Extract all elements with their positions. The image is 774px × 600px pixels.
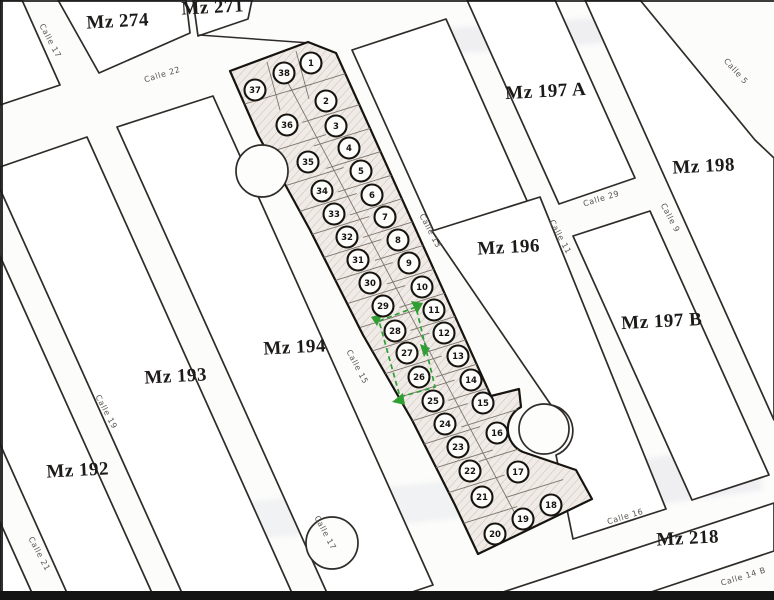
block-label-mz-193: Mz 193: [144, 364, 208, 388]
lot-number: 25: [427, 397, 439, 407]
lot-28: 28: [385, 321, 406, 342]
lot-17: 17: [508, 462, 529, 483]
lot-number: 34: [316, 187, 328, 197]
block-label-mz-197-a: Mz 197 A: [505, 79, 587, 104]
lot-23: 23: [448, 437, 469, 458]
lot-11: 11: [424, 300, 445, 321]
lot-number: 36: [281, 121, 293, 131]
lot-2: 2: [316, 91, 337, 112]
lot-37: 37: [245, 80, 266, 101]
lot-number: 23: [452, 443, 464, 453]
block-label-mz-197-b: Mz 197 B: [621, 309, 703, 334]
lot-number: 19: [517, 515, 529, 525]
block-label-mz-192: Mz 192: [46, 458, 110, 482]
lot-26: 26: [409, 367, 430, 388]
lot-number: 24: [439, 420, 451, 430]
lot-4: 4: [339, 138, 360, 159]
lot-35: 35: [298, 152, 319, 173]
scan-border-top: [0, 0, 774, 2]
lot-5: 5: [351, 161, 372, 182]
lot-number: 26: [413, 373, 425, 383]
lot-7: 7: [375, 207, 396, 228]
block-label-mz-196: Mz 196: [477, 235, 541, 259]
scan-border-left: [0, 0, 3, 600]
map-canvas: 1234567891011121314151617181920212223242…: [0, 0, 774, 600]
scanned-cadastral-map: 1234567891011121314151617181920212223242…: [0, 0, 774, 600]
lot-number: 18: [545, 501, 557, 511]
lot-27: 27: [397, 343, 418, 364]
lot-number: 38: [278, 69, 290, 79]
lot-number: 35: [302, 158, 314, 168]
cul-de-sac-calle-15: [236, 145, 288, 197]
lot-number: 13: [452, 352, 464, 362]
cul-de-sac-calle-13: [519, 404, 569, 454]
lot-number: 30: [364, 279, 376, 289]
lot-number: 21: [476, 493, 488, 503]
lot-number: 17: [512, 468, 524, 478]
lot-6: 6: [362, 185, 383, 206]
lot-14: 14: [461, 370, 482, 391]
lot-number: 14: [465, 376, 477, 386]
lot-25: 25: [423, 391, 444, 412]
lot-number: 16: [491, 429, 503, 439]
lot-21: 21: [472, 487, 493, 508]
lot-13: 13: [448, 346, 469, 367]
lot-number: 3: [333, 122, 339, 132]
lot-30: 30: [360, 273, 381, 294]
lot-15: 15: [473, 393, 494, 414]
lot-24: 24: [435, 414, 456, 435]
lot-number: 6: [369, 191, 375, 201]
lot-number: 29: [377, 302, 389, 312]
lot-number: 2: [323, 97, 329, 107]
lot-number: 32: [341, 233, 353, 243]
lot-number: 9: [406, 259, 412, 269]
lot-number: 33: [328, 210, 340, 220]
lot-number: 11: [428, 306, 440, 316]
lot-number: 10: [416, 283, 428, 293]
lot-number: 12: [438, 329, 450, 339]
lot-1: 1: [301, 53, 322, 74]
lot-8: 8: [388, 230, 409, 251]
block-label-mz-271: Mz 271: [181, 0, 245, 20]
lot-32: 32: [337, 227, 358, 248]
lot-31: 31: [348, 250, 369, 271]
lot-16: 16: [487, 423, 508, 444]
lot-20: 20: [485, 524, 506, 545]
lot-33: 33: [324, 204, 345, 225]
lot-number: 37: [249, 86, 261, 96]
lot-number: 27: [401, 349, 413, 359]
lot-12: 12: [434, 323, 455, 344]
lot-10: 10: [412, 277, 433, 298]
block-label-mz-274: Mz 274: [86, 9, 150, 33]
block-label-mz-194: Mz 194: [263, 335, 327, 359]
lot-number: 31: [352, 256, 364, 266]
lot-number: 15: [477, 399, 489, 409]
lot-3: 3: [326, 116, 347, 137]
block-label-mz-198: Mz 198: [672, 154, 736, 178]
lot-34: 34: [312, 181, 333, 202]
lot-number: 4: [346, 144, 352, 154]
lot-9: 9: [399, 253, 420, 274]
lot-number: 28: [389, 327, 401, 337]
lot-22: 22: [460, 461, 481, 482]
lot-19: 19: [513, 509, 534, 530]
lot-number: 22: [464, 467, 476, 477]
lot-38: 38: [274, 63, 295, 84]
lot-number: 20: [489, 530, 501, 540]
scan-border-bottom: [0, 591, 774, 600]
block-label-mz-218: Mz 218: [656, 526, 720, 550]
lot-number: 1: [308, 59, 314, 69]
lot-36: 36: [277, 115, 298, 136]
lot-number: 8: [395, 236, 401, 246]
lot-number: 5: [358, 167, 364, 177]
lot-18: 18: [541, 495, 562, 516]
lot-29: 29: [373, 296, 394, 317]
lot-number: 7: [382, 213, 388, 223]
